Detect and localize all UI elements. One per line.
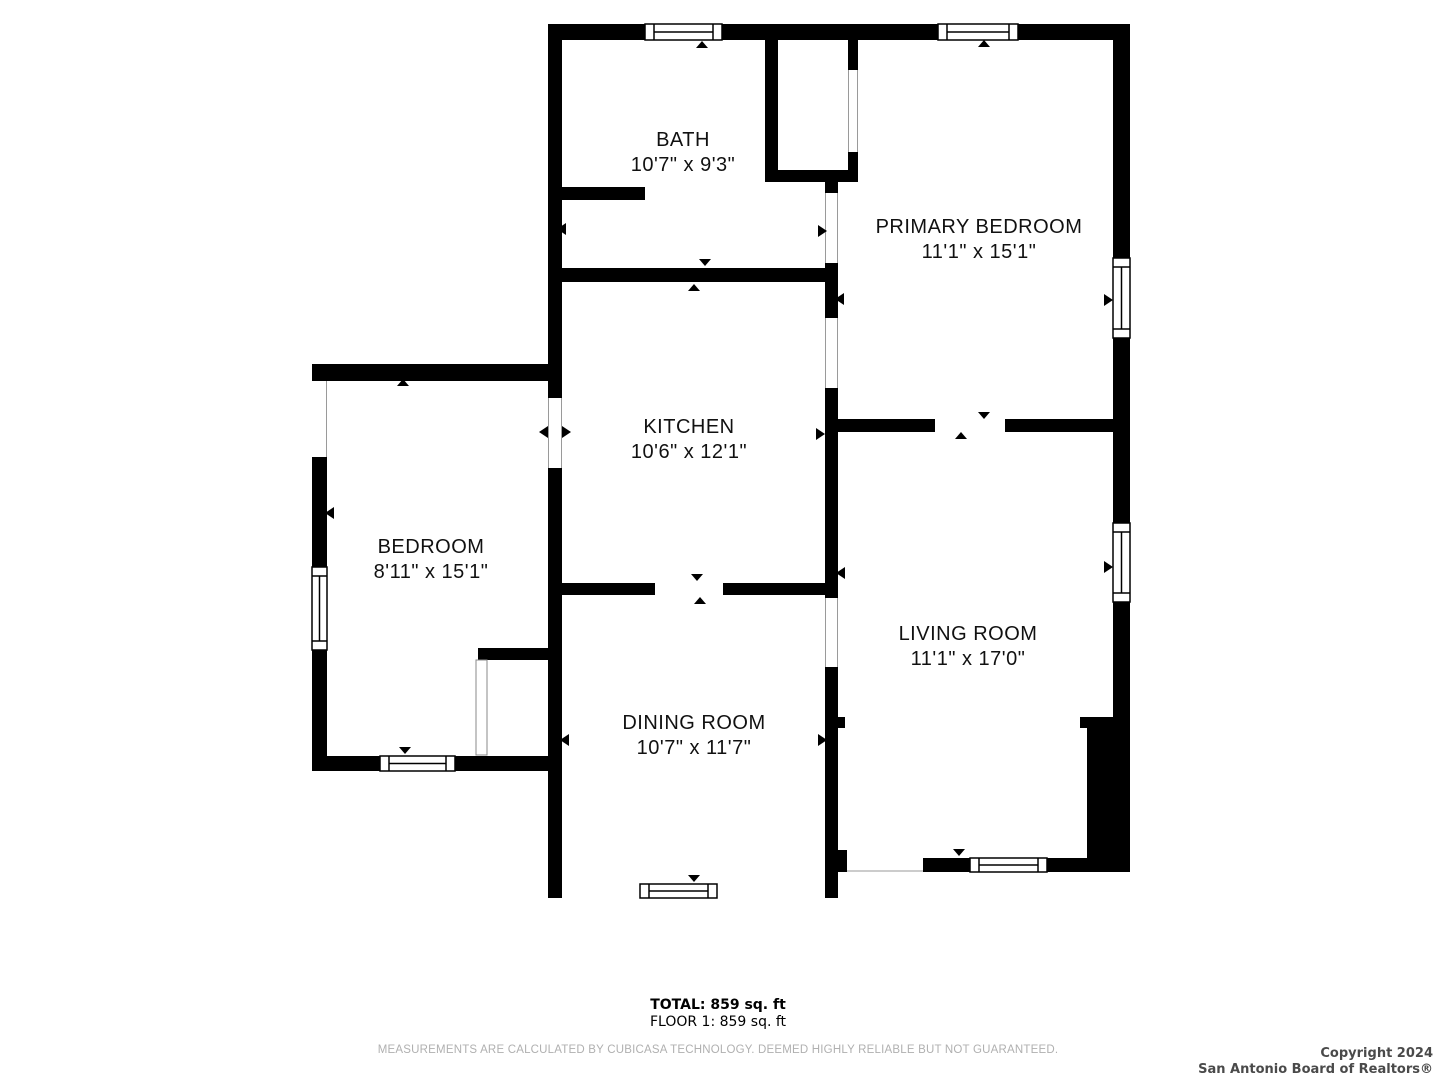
copyright-line2: San Antonio Board of Realtors®: [1198, 1062, 1433, 1078]
floor-area-text: FLOOR 1: 859 sq. ft: [650, 1014, 786, 1031]
marker-arrow-icon: [691, 574, 703, 581]
room-dims-living-room: 11'1" x 17'0": [911, 648, 1026, 670]
marker-arrow-icon: [696, 41, 708, 48]
marker-arrow-icon: [694, 597, 706, 604]
total-area-text: TOTAL: 859 sq. ft: [650, 997, 786, 1014]
marker-arrow-icon: [539, 426, 548, 438]
copyright-line1: Copyright 2024: [1198, 1046, 1433, 1062]
opening-primary-to-living: [935, 419, 1005, 432]
window-primary-top: [938, 24, 1018, 40]
window-primary-right: [1113, 258, 1130, 338]
marker-arrow-icon: [688, 284, 700, 291]
floor-plan-page: { "rooms": [ {"name": "BATH", "dims": "1…: [0, 0, 1440, 1080]
wall-central-bump: [838, 717, 845, 728]
wall-central-foot: [838, 850, 847, 872]
marker-arrow-icon: [978, 412, 990, 419]
area-summary: TOTAL: 859 sq. ft FLOOR 1: 859 sq. ft: [650, 997, 786, 1031]
window-living-bottom: [970, 858, 1047, 872]
opening-bedroom-left: [312, 381, 327, 457]
wall-chimney-mass: [1087, 717, 1130, 872]
wall-right: [1113, 24, 1130, 718]
room-label-bedroom: BEDROOM: [378, 536, 485, 558]
room-dims-bath: 10'7" x 9'3": [631, 154, 736, 176]
window-bath-top: [645, 24, 722, 40]
room-label-living-room: LIVING ROOM: [899, 623, 1038, 645]
room-label-primary-bedroom: PRIMARY BEDROOM: [876, 216, 1083, 238]
wall-bedroom-closet-top: [478, 648, 562, 660]
marker-arrow-icon: [955, 432, 967, 439]
wall-chimney-notch: [1080, 717, 1087, 728]
room-label-dining-room: DINING ROOM: [622, 712, 765, 734]
marker-arrow-icon: [562, 426, 571, 438]
wall-bath-stub: [548, 187, 645, 200]
window-living-right: [1113, 523, 1130, 602]
wall-top: [548, 24, 1130, 40]
marker-arrow-icon: [699, 259, 711, 266]
window-dining-bottom: [640, 884, 717, 898]
opening-closet-door: [848, 70, 858, 152]
closet-door-leaf: [476, 660, 487, 755]
marker-arrow-icon: [978, 40, 990, 47]
copyright-notice: Copyright 2024 San Antonio Board of Real…: [1198, 1046, 1433, 1078]
wall-closet-bottom: [765, 170, 858, 182]
measurement-disclaimer: MEASUREMENTS ARE CALCULATED BY CUBICASA …: [378, 1044, 1058, 1056]
window-bedroom-bottom: [380, 756, 455, 771]
opening-bath-to-primary: [825, 193, 838, 263]
room-dims-bedroom: 8'11" x 15'1": [374, 561, 489, 583]
room-dims-primary-bedroom: 11'1" x 15'1": [922, 241, 1037, 263]
marker-arrow-icon: [1104, 561, 1113, 573]
opening-dining-to-living: [825, 598, 838, 667]
marker-arrow-icon: [953, 849, 965, 856]
room-label-bath: BATH: [656, 129, 710, 151]
marker-arrow-icon: [399, 747, 411, 754]
marker-arrow-icon: [1104, 294, 1113, 306]
room-label-kitchen: KITCHEN: [643, 416, 734, 438]
marker-arrow-icon: [816, 428, 825, 440]
wall-bedroom-top: [312, 364, 562, 381]
floor-plan-svg: BATH 10'7" x 9'3" PRIMARY BEDROOM 11'1" …: [0, 0, 1440, 1080]
marker-arrow-icon: [688, 875, 700, 882]
opening-kitchen-to-primary: [825, 318, 838, 388]
wall-bath-south: [548, 268, 838, 282]
wall-central: [825, 182, 838, 898]
window-bedroom-left: [312, 567, 327, 650]
room-dims-dining-room: 10'7" x 11'7": [637, 737, 752, 759]
room-dims-kitchen: 10'6" x 12'1": [631, 441, 747, 463]
opening-bedroom-door: [548, 398, 562, 468]
opening-kitchen-to-dining: [655, 583, 723, 595]
wall-closet-left: [765, 40, 778, 182]
